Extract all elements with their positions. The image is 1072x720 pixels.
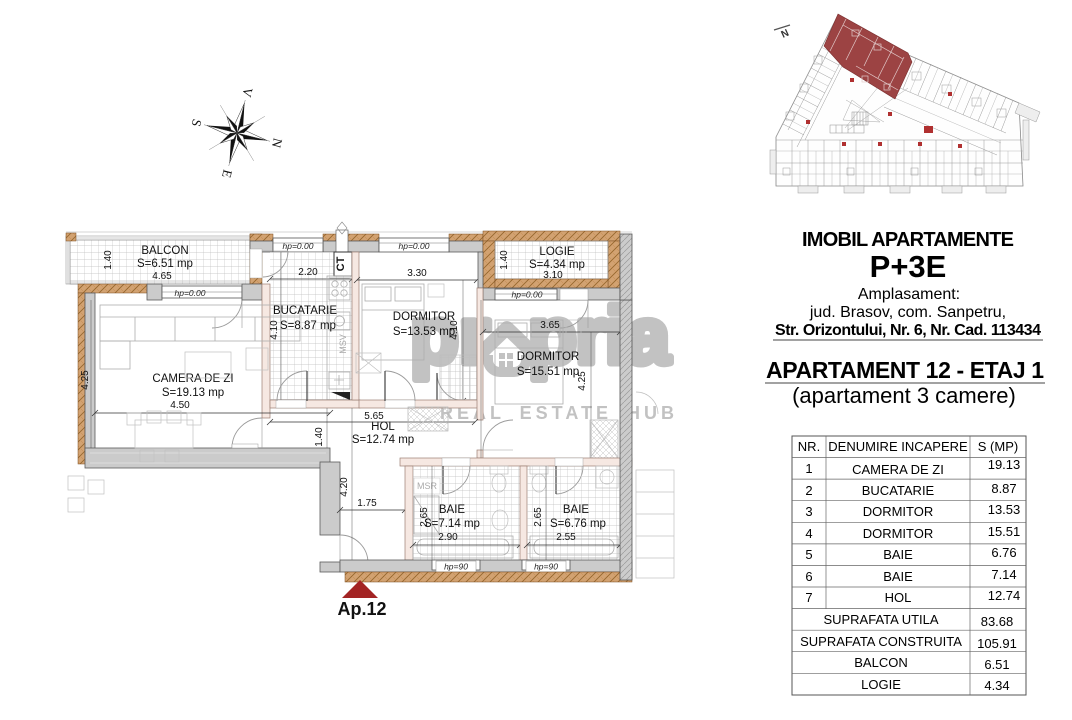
- svg-text:BAIE: BAIE: [883, 569, 913, 584]
- svg-text:CT: CT: [335, 256, 347, 271]
- svg-text:6: 6: [805, 569, 812, 584]
- svg-text:4.50: 4.50: [170, 400, 190, 411]
- svg-text:IMOBIL APARTAMENTE: IMOBIL APARTAMENTE: [802, 229, 1014, 251]
- svg-text:83.68: 83.68: [981, 614, 1014, 629]
- svg-text:BAIE: BAIE: [563, 504, 590, 516]
- svg-text:BAIE: BAIE: [883, 547, 913, 562]
- svg-text:5.65: 5.65: [364, 411, 384, 422]
- svg-text:SUPRAFATA UTILA: SUPRAFATA UTILA: [823, 612, 938, 627]
- svg-text:S=8.87 mp: S=8.87 mp: [280, 320, 336, 332]
- svg-text:4: 4: [805, 526, 812, 541]
- svg-text:jud. Brasov, com. Sanpetru,: jud. Brasov, com. Sanpetru,: [809, 304, 1006, 321]
- svg-text:1.40: 1.40: [499, 250, 510, 270]
- svg-text:HOL: HOL: [371, 421, 395, 433]
- svg-text:BALCON: BALCON: [141, 245, 188, 257]
- svg-text:NR.: NR.: [798, 439, 820, 454]
- svg-text:DORMITOR: DORMITOR: [393, 311, 455, 323]
- svg-text:S (MP): S (MP): [978, 439, 1018, 454]
- svg-text:S=12.74 mp: S=12.74 mp: [352, 434, 414, 446]
- svg-text:S=7.14 mp: S=7.14 mp: [424, 518, 480, 530]
- svg-text:APARTAMENT 12 - ETAJ 1: APARTAMENT 12 - ETAJ 1: [766, 357, 1044, 383]
- svg-text:2: 2: [805, 483, 812, 498]
- svg-text:Ap.12: Ap.12: [337, 599, 386, 619]
- svg-text:1: 1: [805, 461, 812, 476]
- svg-text:2.20: 2.20: [298, 267, 318, 278]
- svg-text:DORMITOR: DORMITOR: [863, 504, 934, 519]
- svg-text:1.40: 1.40: [314, 427, 325, 447]
- svg-text:hp=0.00: hp=0.00: [175, 288, 206, 298]
- svg-text:Amplasament:: Amplasament:: [858, 286, 960, 303]
- svg-text:13.53: 13.53: [988, 502, 1021, 517]
- svg-text:DENUMIRE INCAPERE: DENUMIRE INCAPERE: [828, 439, 968, 454]
- svg-text:4.25: 4.25: [577, 371, 588, 391]
- svg-text:3.30: 3.30: [407, 268, 427, 279]
- svg-text:5: 5: [805, 547, 812, 562]
- svg-text:Str. Orizontului, Nr. 6, Nr. C: Str. Orizontului, Nr. 6, Nr. Cad. 113434: [775, 322, 1041, 339]
- svg-text:3.10: 3.10: [543, 270, 563, 281]
- svg-text:2.65: 2.65: [533, 507, 544, 527]
- svg-text:BUCATARIE: BUCATARIE: [862, 483, 935, 498]
- svg-text:CAMERA DE ZI: CAMERA DE ZI: [852, 462, 944, 477]
- svg-text:4.10: 4.10: [269, 320, 280, 340]
- svg-text:S=6.51 mp: S=6.51 mp: [137, 258, 193, 270]
- svg-text:8.87: 8.87: [991, 481, 1016, 496]
- svg-text:MSV: MSV: [338, 334, 348, 354]
- svg-text:LOGIE: LOGIE: [861, 677, 901, 692]
- svg-text:12.74: 12.74: [988, 588, 1021, 603]
- svg-text:(apartament 3 camere): (apartament 3 camere): [792, 383, 1016, 408]
- svg-text:3: 3: [805, 504, 812, 519]
- svg-text:BALCON: BALCON: [854, 655, 907, 670]
- svg-text:7.14: 7.14: [991, 567, 1016, 582]
- svg-text:15.51: 15.51: [988, 524, 1021, 539]
- svg-text:hp=90: hp=90: [444, 562, 468, 572]
- svg-text:CAMERA DE ZI: CAMERA DE ZI: [152, 373, 233, 385]
- svg-text:BUCATARIE: BUCATARIE: [273, 305, 337, 317]
- svg-text:LOGIE: LOGIE: [539, 246, 574, 258]
- svg-text:6.76: 6.76: [991, 545, 1016, 560]
- svg-text:S=13.53 mp: S=13.53 mp: [393, 326, 455, 338]
- svg-text:2.55: 2.55: [556, 532, 576, 543]
- svg-text:19.13: 19.13: [988, 457, 1021, 472]
- svg-text:S=15.51 mp: S=15.51 mp: [517, 366, 579, 378]
- svg-text:4.10: 4.10: [449, 320, 460, 340]
- svg-text:S=6.76 mp: S=6.76 mp: [550, 518, 606, 530]
- svg-text:4.65: 4.65: [152, 271, 172, 282]
- svg-text:2.90: 2.90: [438, 532, 458, 543]
- svg-text:DORMITOR: DORMITOR: [863, 526, 934, 541]
- svg-text:1.40: 1.40: [103, 250, 114, 270]
- svg-text:MSR: MSR: [417, 481, 438, 491]
- svg-text:7: 7: [805, 590, 812, 605]
- svg-text:DORMITOR: DORMITOR: [517, 351, 579, 363]
- svg-text:4.25: 4.25: [80, 370, 91, 390]
- svg-text:2.65: 2.65: [419, 507, 430, 527]
- svg-text:105.91: 105.91: [977, 636, 1017, 651]
- svg-text:HOL: HOL: [885, 590, 912, 605]
- svg-text:BAIE: BAIE: [439, 504, 466, 516]
- svg-text:hp=0.00: hp=0.00: [399, 241, 430, 251]
- svg-text:hp=0.00: hp=0.00: [283, 241, 314, 251]
- svg-text:hp=0.00: hp=0.00: [512, 290, 543, 300]
- svg-text:4.34: 4.34: [984, 678, 1009, 693]
- svg-text:1.75: 1.75: [357, 498, 377, 509]
- svg-text:SUPRAFATA CONSTRUITA: SUPRAFATA CONSTRUITA: [800, 634, 962, 649]
- svg-text:3.65: 3.65: [540, 320, 560, 331]
- svg-text:S=19.13 mp: S=19.13 mp: [162, 387, 224, 399]
- svg-text:6.51: 6.51: [984, 657, 1009, 672]
- svg-text:4.20: 4.20: [339, 477, 350, 497]
- svg-text:hp=90: hp=90: [534, 562, 558, 572]
- svg-text:P+3E: P+3E: [870, 249, 947, 284]
